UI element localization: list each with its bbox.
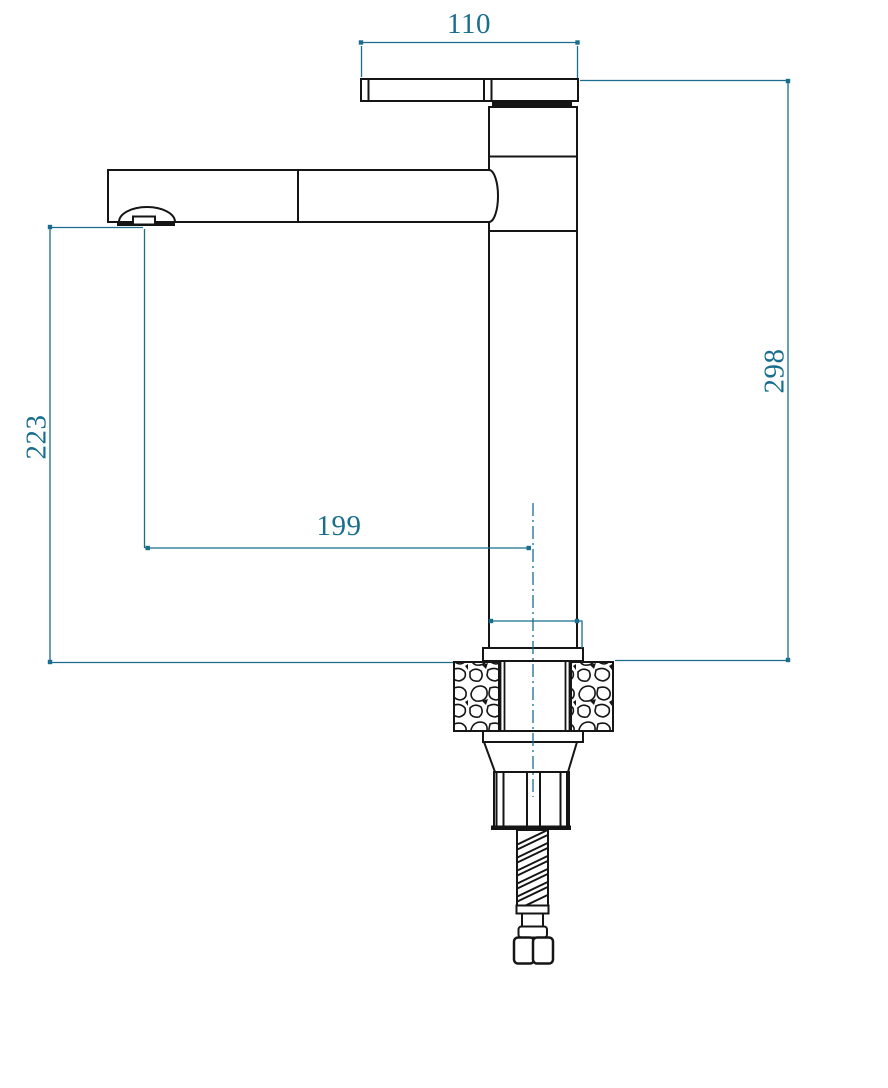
counter-hatch-right [571,662,613,731]
hose-collar [519,927,548,938]
dimension-110-spout-top-width [359,40,580,78]
dimension-223-spout-outlet-height [48,225,453,664]
mounting-nut [491,772,571,830]
dimension-199-spout-reach [145,229,532,550]
technical-drawing-canvas: 110 298 223 199 [0,0,888,1088]
faucet-spout-arm [108,170,498,226]
threaded-shank [501,662,570,731]
dim-label-spout-reach: 199 [317,512,362,541]
supply-hose [510,826,556,964]
dimension-lines [48,40,790,797]
dim-label-overall-height: 298 [761,349,790,394]
hose-end-band [517,906,549,914]
aerator-nozzle [117,217,175,227]
hose-connector-hex-nut [514,938,553,964]
faucet-line-drawing [0,0,888,1088]
handle-joint-strip [492,102,572,107]
dim-label-spout-top-width: 110 [447,10,491,39]
faucet-handle-lever [361,79,578,107]
counter-hatch-left [454,662,499,731]
dim-label-spout-outlet-height: 223 [23,415,52,460]
cone-washer [484,742,577,772]
hose-stem [522,914,543,927]
